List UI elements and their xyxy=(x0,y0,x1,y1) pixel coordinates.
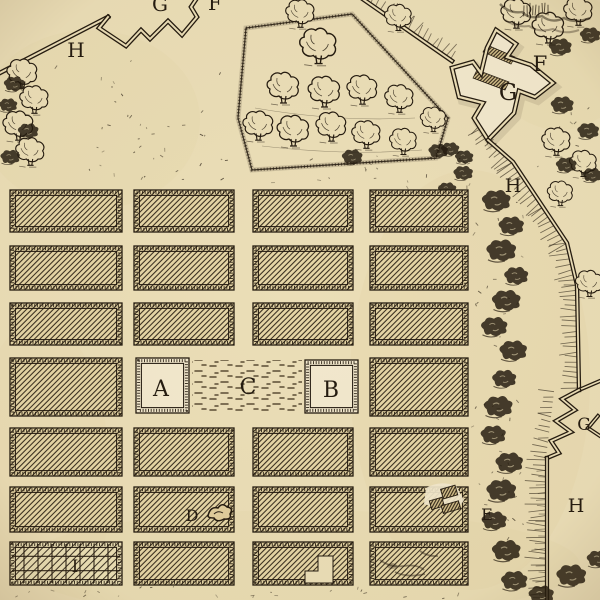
city-block-r5c1 xyxy=(10,428,122,476)
antique-map-page: GFHFGHGHACBDEI xyxy=(0,0,600,600)
city-block-r2c4 xyxy=(370,246,468,290)
map-label-i-lots-block: I xyxy=(72,557,79,577)
palisade-tick xyxy=(542,3,543,12)
city-block-r2c1 xyxy=(10,246,122,290)
city-block-r5c3 xyxy=(253,428,353,476)
map-label-h-east-wall-upper: H xyxy=(505,175,522,197)
city-block-r1c4 xyxy=(370,190,468,232)
map-label-g-northeast-fort: G xyxy=(499,80,517,106)
city-block-r7c1 xyxy=(10,542,122,585)
city-block-r5c4 xyxy=(370,428,468,476)
city-block-r3c1 xyxy=(10,303,122,345)
city-block-r7c2 xyxy=(134,542,234,585)
city-block-r7c3 xyxy=(253,542,353,585)
city-block-r2c3 xyxy=(253,246,353,290)
map-label-f-northeast-fort: F xyxy=(533,52,548,76)
engraved-town-plan-map: GFHFGHGHACBDEI xyxy=(0,0,600,600)
map-label-h-northwest-wall: H xyxy=(67,38,84,62)
city-block-r6c1 xyxy=(10,487,122,532)
city-block-r1c2 xyxy=(134,190,234,232)
map-label-g-northwest-fort: G xyxy=(152,0,168,16)
map-label-f-northwest-fort: F xyxy=(208,0,222,15)
map-label-g-east-bastion: G xyxy=(577,415,591,435)
city-block-r6c3 xyxy=(253,487,353,532)
city-block-r5c2 xyxy=(134,428,234,476)
map-label-b-square: B xyxy=(323,378,339,403)
map-label-d-block: D xyxy=(186,506,199,525)
city-block-r4c4 xyxy=(370,358,468,416)
city-block-r1c3 xyxy=(253,190,353,232)
city-block-r3c4 xyxy=(370,303,468,345)
map-label-h-east-wall-lower: H xyxy=(568,495,585,517)
map-label-c-common: C xyxy=(240,375,257,400)
map-label-a-square: A xyxy=(152,377,170,402)
city-block-r4c1 xyxy=(10,358,122,416)
palisade-tick xyxy=(544,3,545,13)
city-block-r2c2 xyxy=(134,246,234,290)
city-block-r7c4 xyxy=(370,542,468,585)
city-block-r3c3 xyxy=(253,303,353,345)
map-label-e-site: E xyxy=(481,505,493,524)
city-block-r1c1 xyxy=(10,190,122,232)
city-block-r3c2 xyxy=(134,303,234,345)
